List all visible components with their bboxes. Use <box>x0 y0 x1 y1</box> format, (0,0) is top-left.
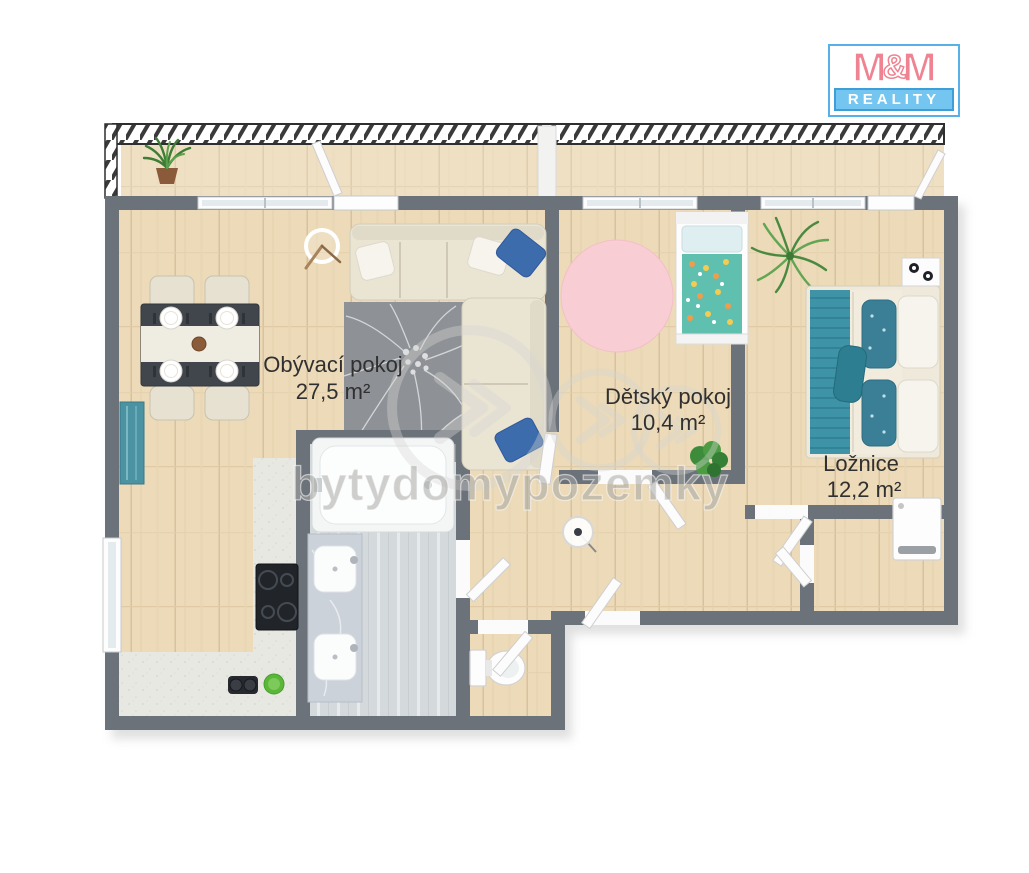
sofa-pillow-white <box>354 240 395 281</box>
vanity-double-sink <box>308 534 362 702</box>
logo-brand: M&M <box>834 47 954 87</box>
window-bedroom <box>761 197 865 209</box>
dining-chair <box>205 386 249 420</box>
bedroom-area: 12,2 m² <box>827 477 902 502</box>
balcony-door-living <box>334 196 398 210</box>
kids-bed <box>676 212 748 344</box>
logo-m2: M <box>902 44 935 90</box>
balcony-door-bedroom <box>868 196 914 210</box>
window-kitchen <box>103 538 121 652</box>
balcony-railing <box>113 124 944 144</box>
table-centerpiece <box>192 337 206 351</box>
balcony-divider <box>538 126 556 198</box>
bed-pillow-white <box>898 380 938 452</box>
cooktop <box>256 564 298 630</box>
balcony <box>105 124 944 198</box>
logo-tagline: REALITY <box>834 88 954 111</box>
logo-m1: M <box>852 44 885 90</box>
logo-ampersand: & <box>883 48 906 85</box>
bed-pillow-white <box>898 296 938 368</box>
floorplan-svg: bytydomypozemky Obývací pokoj 27,5 m² Dě… <box>0 0 1029 873</box>
pet-bowls <box>228 674 284 694</box>
nightstand <box>902 258 940 286</box>
washing-machine <box>893 498 941 560</box>
window-living-room <box>198 197 332 209</box>
window-kids-room <box>583 197 697 209</box>
bed-pillow-teal <box>862 380 896 446</box>
dining-chair <box>150 386 194 420</box>
wall-art-teal <box>120 402 144 484</box>
kids-room-area: 10,4 m² <box>631 410 706 435</box>
double-bed <box>806 286 940 458</box>
kids-round-rug <box>561 240 673 352</box>
kids-room-label: Dětský pokoj <box>605 384 731 409</box>
floorplan-screenshot: bytydomypozemky Obývací pokoj 27,5 m² Dě… <box>0 0 1029 873</box>
living-room-label: Obývací pokoj <box>263 352 402 377</box>
kids-pillow <box>682 226 742 252</box>
watermark-text: bytydomypozemky <box>291 457 729 510</box>
mm-reality-logo: M&M REALITY <box>828 44 960 117</box>
bedroom-label: Ložnice <box>823 451 899 476</box>
bed-pillow-teal <box>862 300 896 368</box>
living-room-area: 27,5 m² <box>296 379 371 404</box>
